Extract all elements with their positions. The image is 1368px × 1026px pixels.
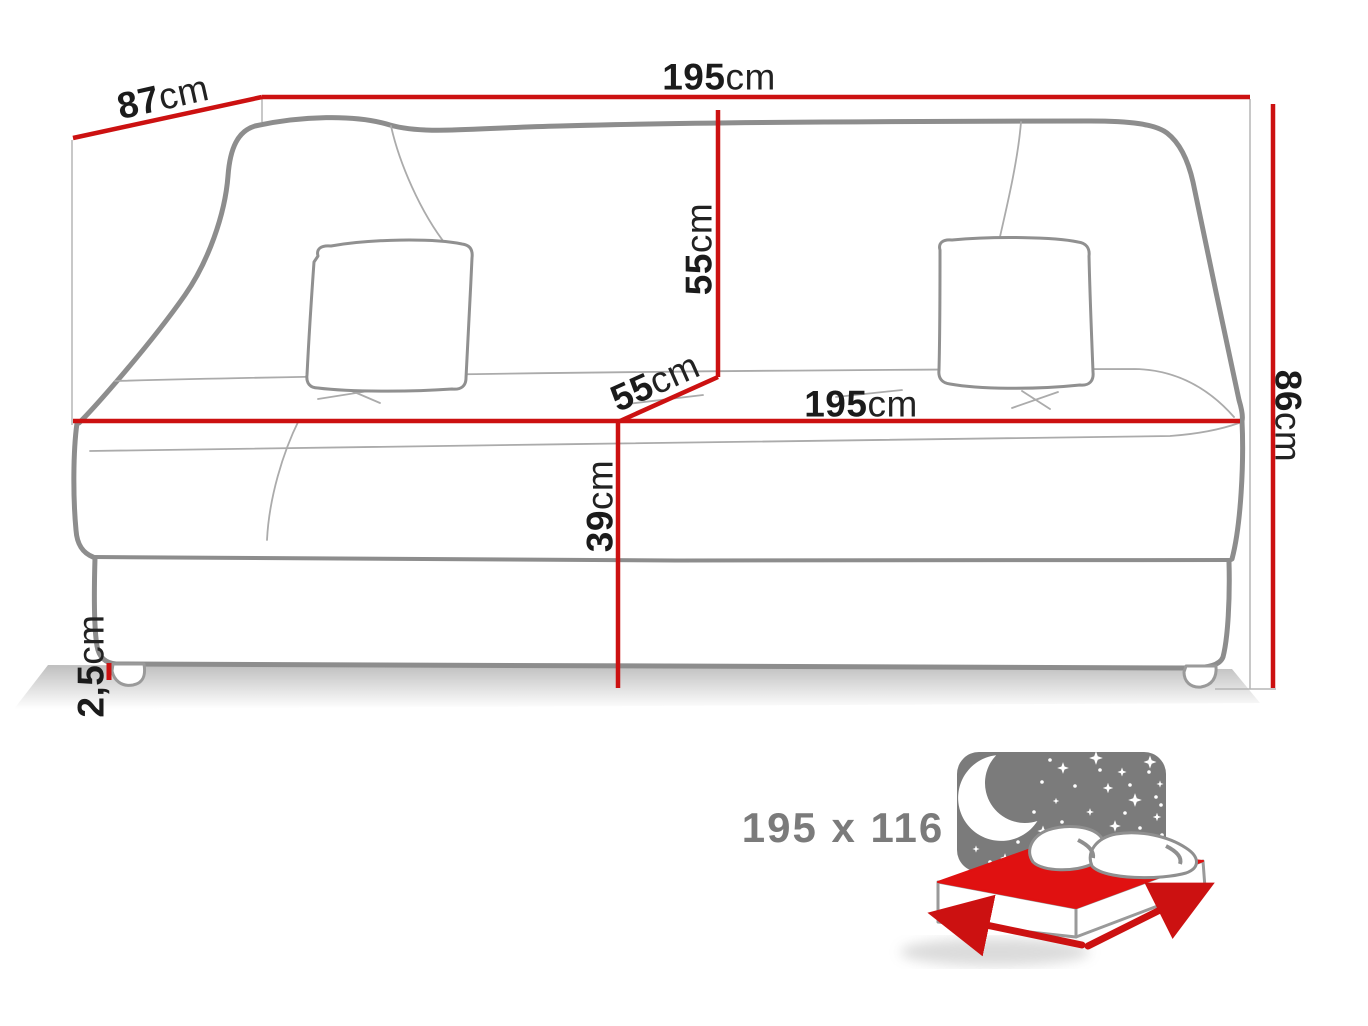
- dim-seat-height: 39cm: [582, 460, 619, 552]
- seat-front-seam: [267, 420, 299, 540]
- dim-seat-height-unit: cm: [580, 460, 621, 510]
- bed-pillows: [1030, 827, 1197, 878]
- backrest-seam-left: [391, 126, 447, 246]
- dim-seat-width-value: 195: [804, 384, 867, 425]
- dim-overall-height-value: 86: [1268, 370, 1309, 412]
- dim-overall-height-unit: cm: [1268, 412, 1309, 462]
- dim-width-top-value: 195: [662, 57, 725, 98]
- sofa-seat-right-edge: [1232, 421, 1243, 559]
- dim-leg-height-unit: cm: [71, 614, 112, 664]
- sofa-base-seam: [93, 557, 1231, 561]
- sofa-floor-shadow: [14, 665, 1260, 709]
- seat-front-edge-line: [90, 423, 1239, 451]
- cushion-right: [939, 238, 1093, 389]
- backrest-seam-right: [999, 122, 1021, 241]
- sofa-seat-left-edge: [74, 423, 93, 557]
- dim-overall-height: 86cm: [1270, 370, 1307, 462]
- dim-leg-height-value: 2,5: [71, 665, 112, 718]
- dim-seat-width: 195cm: [804, 386, 918, 423]
- sleeping-area-size-text: 195 x 116: [742, 804, 945, 851]
- dim-seat-width-unit: cm: [867, 384, 917, 425]
- cushion-left: [307, 240, 472, 391]
- diagram-drawing: [0, 0, 1368, 1026]
- dim-backrest-height: 55cm: [681, 203, 718, 295]
- dim-backrest-height-unit: cm: [679, 203, 720, 253]
- dim-width-top-unit: cm: [725, 57, 775, 98]
- dim-leg-height: 2,5cm: [73, 614, 110, 717]
- dim-width-top: 195cm: [662, 59, 776, 96]
- sofa-leg-left: [112, 664, 145, 685]
- sofa-leg-right: [1184, 666, 1216, 687]
- sofa-dimension-diagram: 87cm 195cm 55cm 55cm 195cm 39cm 86cm 2,5…: [0, 0, 1368, 1026]
- sofa-base-outline: [94, 558, 1229, 668]
- sleeping-area-size-label: 195 x 116: [742, 807, 945, 849]
- dim-seat-height-value: 39: [580, 510, 621, 552]
- sleeping-area-bed-icon: [900, 751, 1205, 966]
- dim-backrest-height-value: 55: [679, 253, 720, 295]
- seat-crease: [1022, 391, 1050, 409]
